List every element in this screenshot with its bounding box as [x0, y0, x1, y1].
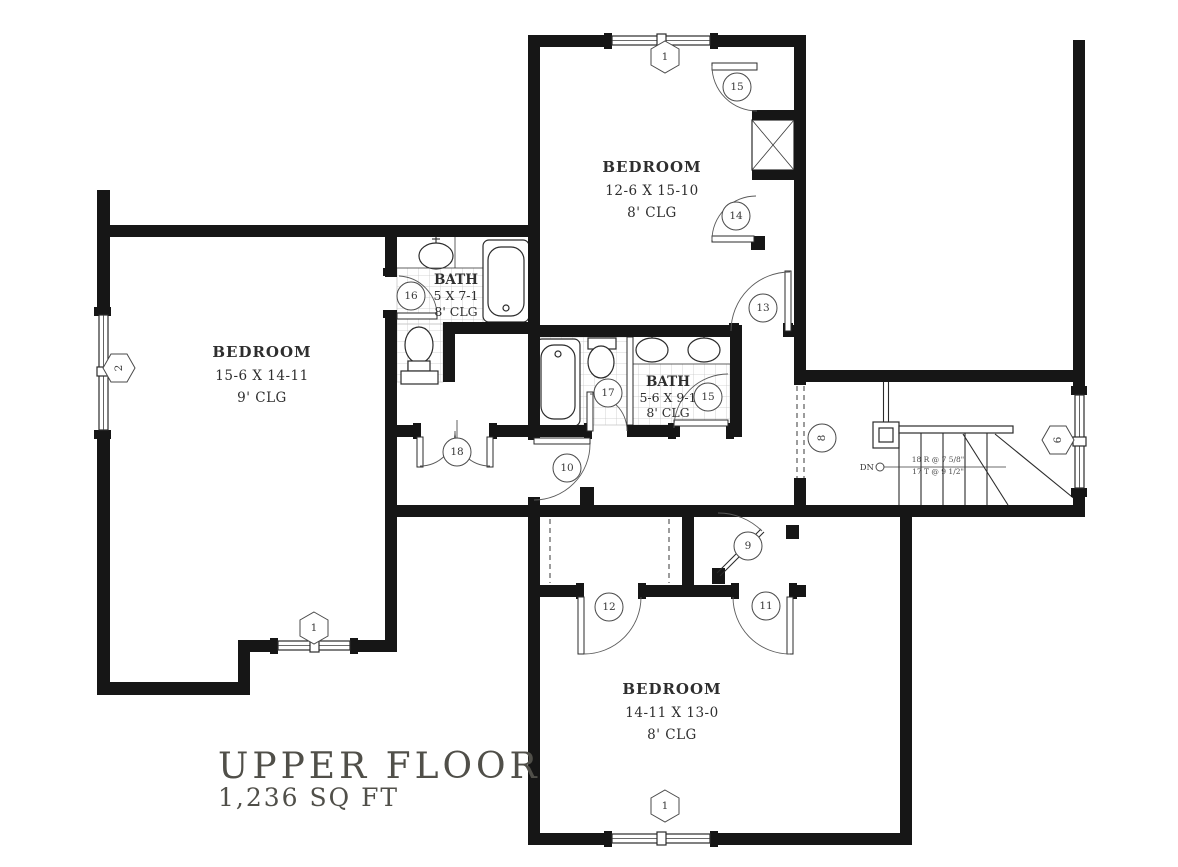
- door-marker-circle: 15: [694, 383, 722, 411]
- bath-partition-wall: [627, 337, 633, 425]
- window-right: [1073, 395, 1086, 488]
- svg-text:18: 18: [450, 446, 463, 458]
- room-label-bedroom-lower: BEDROOM 14-11 X 13-0 8' CLG: [622, 680, 721, 743]
- room-label-bedroom-left: BEDROOM 15-6 X 14-11 9' CLG: [212, 343, 311, 406]
- svg-text:8: 8: [816, 435, 828, 442]
- bathtub-middle-icon: [536, 339, 580, 426]
- window-marker-hexagon: 1: [651, 790, 679, 822]
- linen-closet-icon: [752, 120, 794, 170]
- door-marker-circle: 14: [722, 202, 750, 230]
- plan-area: 1,236 SQ FT: [218, 783, 399, 812]
- svg-text:1: 1: [311, 622, 318, 634]
- svg-text:9' CLG: 9' CLG: [237, 390, 287, 406]
- svg-text:BATH: BATH: [434, 272, 478, 288]
- title-block: UPPER FLOOR 1,236 SQ FT: [218, 746, 541, 812]
- door-marker-circle: 8: [808, 424, 836, 452]
- door-marker-circle: 17: [594, 379, 622, 407]
- svg-text:BEDROOM: BEDROOM: [622, 680, 721, 698]
- svg-text:1: 1: [662, 51, 669, 63]
- svg-text:8' CLG: 8' CLG: [646, 405, 689, 420]
- stair-break-line: [963, 434, 1008, 505]
- svg-text:15: 15: [730, 81, 743, 93]
- svg-text:16: 16: [404, 290, 418, 302]
- door-marker-circle: 12: [595, 593, 623, 621]
- svg-text:5 X 7-1: 5 X 7-1: [434, 288, 479, 303]
- door-marker-circle: 10: [553, 454, 581, 482]
- svg-text:8' CLG: 8' CLG: [647, 727, 697, 743]
- stairs-dn-label: DN: [860, 463, 875, 473]
- svg-text:10: 10: [560, 462, 573, 474]
- bathtub-upper-icon: [483, 240, 529, 322]
- door-marker-circle: 18: [443, 438, 471, 466]
- svg-text:1: 1: [662, 800, 669, 812]
- door-marker-circle: 15: [723, 73, 751, 101]
- room-label-bath-middle: BATH 5-6 X 9-1 8' CLG: [639, 374, 696, 420]
- svg-text:11: 11: [759, 600, 772, 612]
- plan-title: UPPER FLOOR: [218, 746, 541, 787]
- door-marker-circle: 16: [397, 282, 425, 310]
- svg-text:12-6 X 15-10: 12-6 X 15-10: [605, 183, 698, 199]
- svg-text:9: 9: [745, 540, 752, 552]
- room-label-bath-upper: BATH 5 X 7-1 8' CLG: [434, 272, 479, 319]
- svg-text:8' CLG: 8' CLG: [434, 304, 477, 319]
- window-bottom: [612, 832, 710, 845]
- svg-text:6: 6: [1052, 436, 1064, 443]
- closet-rod-dashes: [550, 519, 669, 583]
- svg-text:5-6 X 9-1: 5-6 X 9-1: [639, 390, 696, 405]
- svg-text:14: 14: [729, 210, 743, 222]
- svg-text:BEDROOM: BEDROOM: [212, 343, 311, 361]
- svg-text:15-6 X 14-11: 15-6 X 14-11: [215, 368, 308, 384]
- door-marker-circle: 11: [752, 592, 780, 620]
- svg-text:14-11 X 13-0: 14-11 X 13-0: [625, 705, 718, 721]
- sink-upper-icon: [397, 237, 483, 269]
- window-marker-hexagon: 1: [651, 41, 679, 73]
- cased-opening-dashes: [797, 386, 804, 478]
- door-marker-circle: 9: [734, 532, 762, 560]
- svg-text:17: 17: [601, 387, 614, 399]
- stairs-riser-note: 18 R @ 7 5/8": [912, 455, 965, 464]
- svg-text:15: 15: [701, 391, 714, 403]
- door-marker-circle: 13: [749, 294, 777, 322]
- room-label-bedroom-upper: BEDROOM 12-6 X 15-10 8' CLG: [602, 158, 701, 221]
- toilet-middle-icon: [588, 338, 616, 378]
- window-marker-hexagon: 1: [300, 612, 328, 644]
- svg-text:BEDROOM: BEDROOM: [602, 158, 701, 176]
- svg-text:BATH: BATH: [646, 374, 690, 390]
- stairs-tread-note: 17 T @ 9 1/2": [912, 467, 964, 476]
- window-marker-hexagon: 6: [1042, 426, 1074, 454]
- floor-plan-page: DN 18 R @ 7 5/8" 17 T @ 9 1/2": [0, 0, 1178, 867]
- svg-text:2: 2: [113, 365, 125, 372]
- svg-text:13: 13: [756, 302, 769, 314]
- svg-text:8' CLG: 8' CLG: [627, 205, 677, 221]
- svg-text:12: 12: [602, 601, 615, 613]
- floor-plan-canvas: DN 18 R @ 7 5/8" 17 T @ 9 1/2": [0, 0, 1178, 867]
